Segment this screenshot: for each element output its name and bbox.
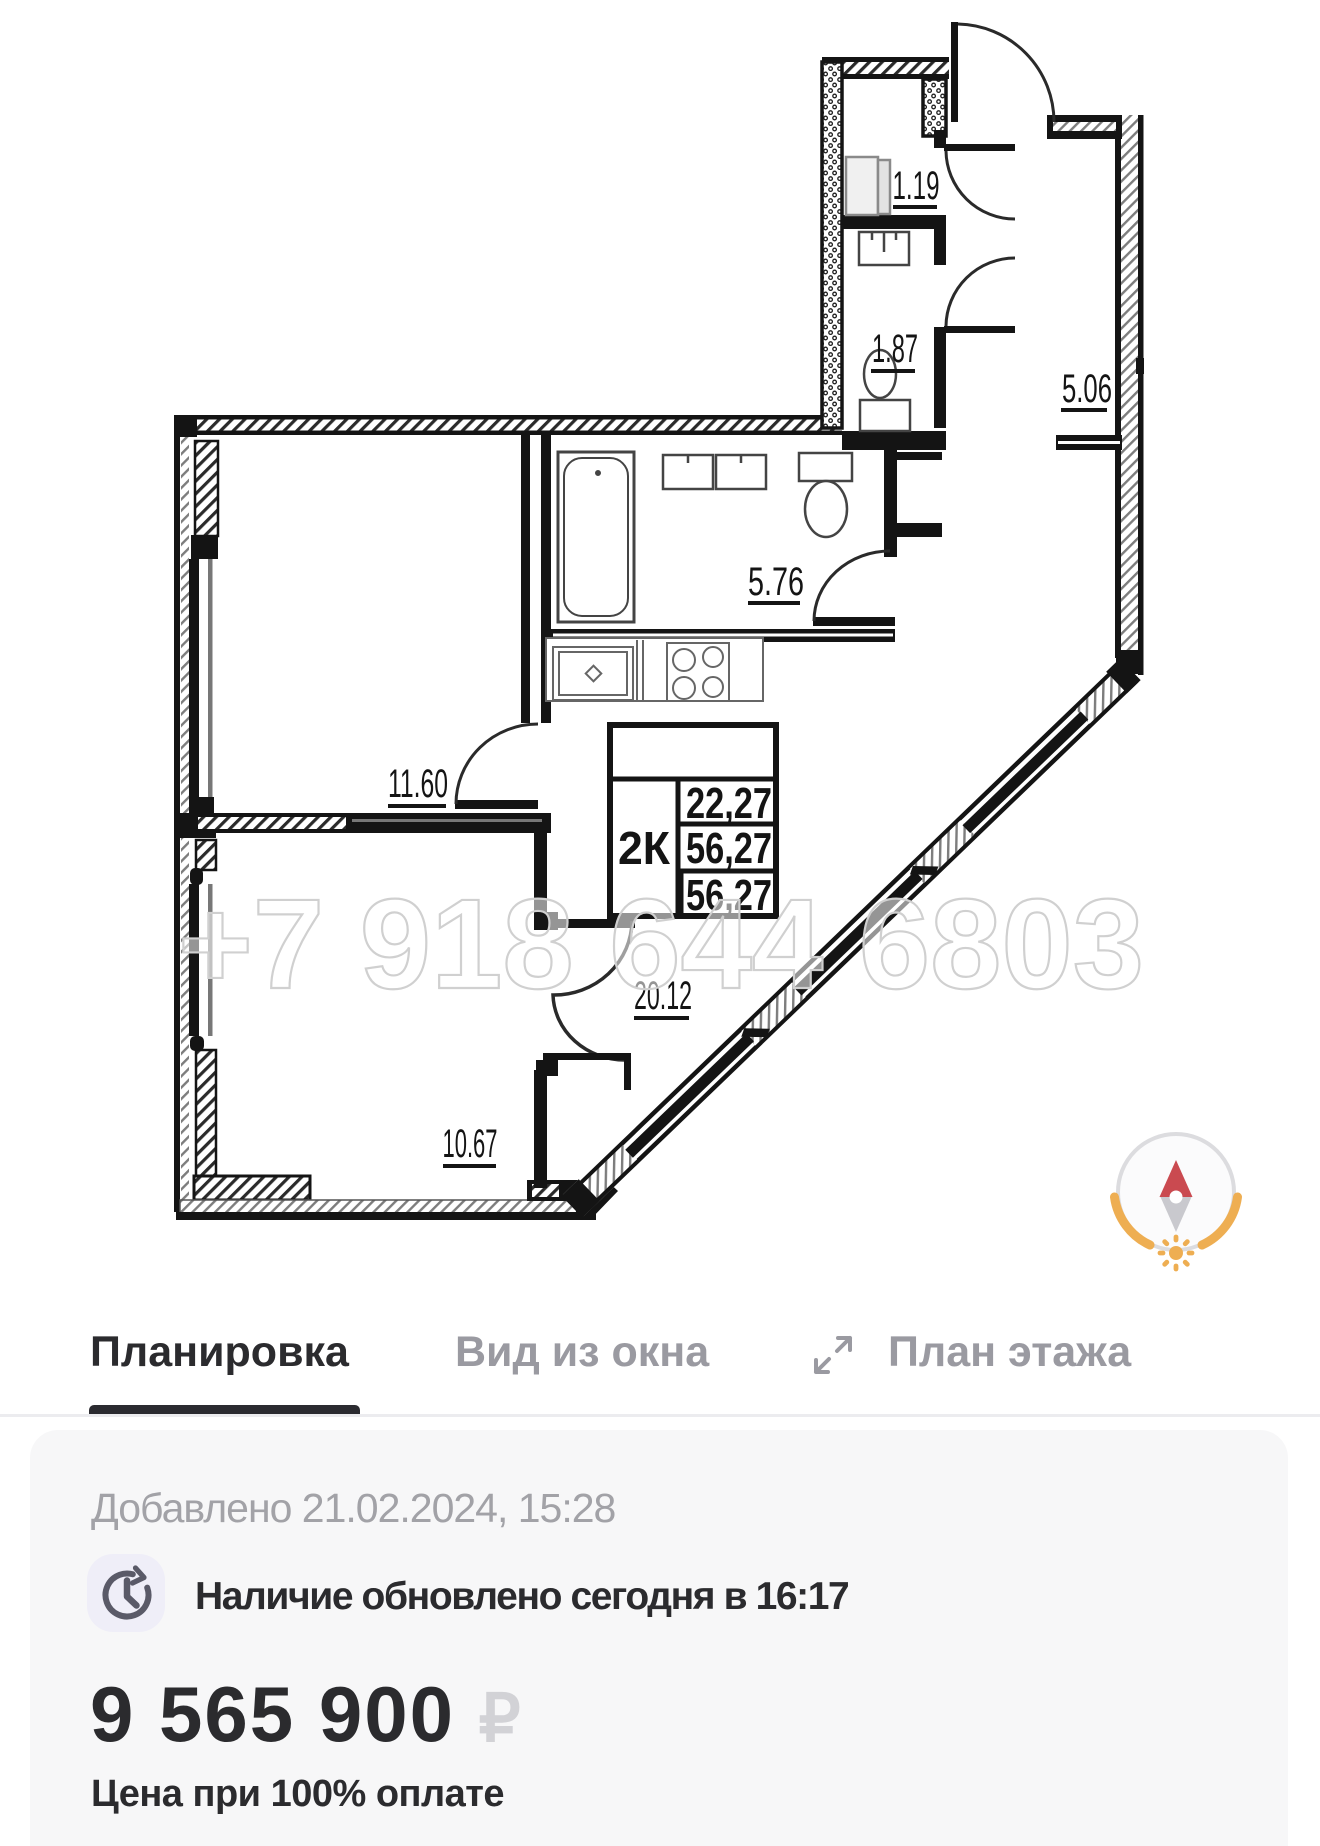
svg-text:5.06: 5.06 [1062, 367, 1112, 411]
svg-text:2К: 2К [618, 822, 671, 874]
svg-text:+7 918 644 6803: +7 918 644 6803 [178, 873, 1144, 1016]
svg-text:10.67: 10.67 [443, 1122, 498, 1166]
svg-text:11.60: 11.60 [388, 762, 448, 806]
svg-text:56,27: 56,27 [686, 824, 772, 873]
svg-text:5.76: 5.76 [748, 560, 804, 604]
svg-text:1.19: 1.19 [893, 164, 940, 208]
svg-text:1.87: 1.87 [872, 327, 918, 371]
svg-text:22,27: 22,27 [686, 779, 772, 828]
